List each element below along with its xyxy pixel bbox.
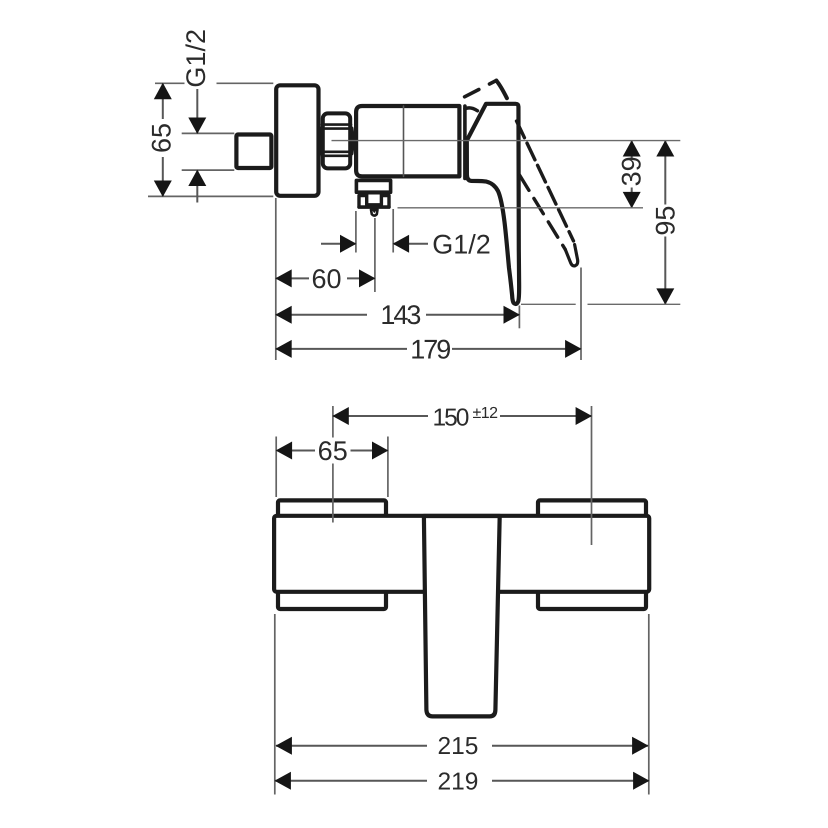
svg-text:65: 65 xyxy=(318,436,348,466)
svg-text:±12: ±12 xyxy=(473,405,499,422)
svg-text:G1/2: G1/2 xyxy=(181,29,211,88)
svg-text:150: 150 xyxy=(433,405,469,432)
svg-text:G1/2: G1/2 xyxy=(432,229,491,259)
svg-text:95: 95 xyxy=(651,206,681,236)
svg-text:143: 143 xyxy=(380,300,420,330)
svg-text:219: 219 xyxy=(438,768,479,795)
svg-text:179: 179 xyxy=(410,334,450,364)
svg-text:39: 39 xyxy=(617,156,647,186)
svg-text:215: 215 xyxy=(438,733,479,760)
svg-text:65: 65 xyxy=(146,123,176,153)
svg-text:60: 60 xyxy=(311,264,341,294)
